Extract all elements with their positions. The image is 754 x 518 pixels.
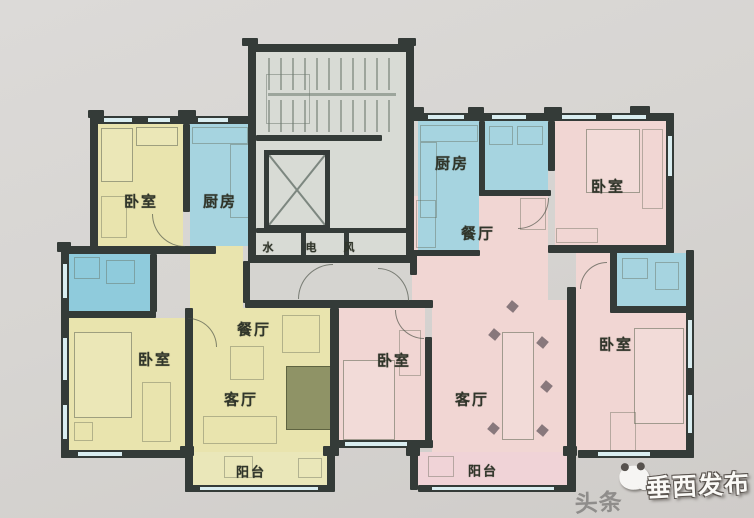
furniture-dining-table [282, 315, 320, 353]
furniture-wardrobe [610, 412, 636, 452]
shaft-label-water: 水 [263, 239, 274, 255]
room-label-right-bedroom-right: 卧室 [599, 334, 633, 355]
furniture-bath-fixture [106, 260, 135, 284]
room-label-right-bedroom-mid: 卧室 [377, 350, 411, 371]
wall-segment [90, 116, 98, 254]
wall-stub [630, 106, 650, 114]
wall-segment [610, 306, 693, 313]
watermark: 头条 垂西发布 [573, 457, 754, 518]
wall-segment [567, 287, 576, 492]
wall-segment [412, 250, 480, 256]
staircase-landing [266, 74, 310, 124]
wall-segment [330, 308, 339, 456]
window-marker [148, 118, 170, 122]
wall-segment [410, 452, 418, 490]
wall-segment [61, 246, 216, 254]
wall-stub [178, 110, 196, 118]
wall-segment [245, 300, 433, 308]
window-marker [428, 115, 464, 119]
elevator-x-icon [269, 155, 325, 225]
room-label-left-balcony: 阳台 [236, 462, 266, 481]
window-marker [562, 115, 596, 119]
wall-stub [88, 110, 104, 118]
wall-stub [563, 446, 577, 456]
furniture-bath-fixture [655, 262, 679, 290]
wall-segment [479, 190, 551, 196]
wall-segment [425, 337, 432, 448]
wall-stub [408, 107, 424, 114]
window-marker [104, 118, 132, 122]
wall-stub [57, 242, 71, 252]
furniture-wardrobe [136, 127, 178, 146]
furniture-bed [101, 128, 133, 182]
window-marker [63, 338, 67, 380]
furniture-sofa [203, 416, 277, 444]
furniture-kitchen-counter [420, 125, 478, 142]
room-label-right-bedroom-top: 卧室 [591, 176, 625, 197]
room-label-left-living: 客厅 [224, 389, 258, 410]
furniture-bed [74, 332, 132, 418]
window-marker [598, 452, 650, 456]
window-marker [198, 118, 228, 122]
wall-stub [398, 38, 416, 46]
furniture-bath-fixture [622, 258, 648, 279]
wall-segment [183, 124, 190, 212]
furniture-bed [343, 360, 395, 440]
window-marker [432, 487, 554, 490]
wall-segment [610, 252, 617, 310]
furniture-bath-fixture [74, 257, 100, 279]
wall-segment [248, 44, 256, 263]
room-left-corridor [190, 246, 243, 308]
watermark-platform-text: 头条 [574, 482, 624, 518]
furniture-wardrobe [142, 382, 171, 442]
furniture-bed [634, 328, 684, 424]
room-label-right-living: 客厅 [455, 389, 489, 410]
wall-segment [410, 255, 417, 275]
furniture-kitchen-counter [192, 127, 248, 144]
furniture-coffee-table [230, 346, 264, 380]
furniture-bath-fixture [489, 126, 513, 145]
window-marker [668, 136, 672, 176]
furniture-bath-fixture [517, 126, 543, 145]
elevator-shaft [264, 150, 330, 230]
wall-stub [323, 446, 337, 456]
floor-plan-image: 卧室 厨房 卧室 餐厅 客厅 阳台 厨房 卧室 餐厅 卧室 客厅 卧室 阳台 水… [0, 0, 754, 518]
shaft-label-vent: 风 [344, 239, 355, 255]
furniture-wardrobe [642, 129, 663, 209]
window-marker [612, 115, 646, 119]
furniture-dining-table [502, 332, 534, 440]
wall-stub [242, 38, 258, 46]
window-marker [63, 405, 67, 439]
room-label-right-balcony: 阳台 [468, 461, 498, 480]
watermark-account-text: 垂西发布 [645, 464, 751, 505]
window-marker [78, 452, 122, 456]
furniture-dresser [556, 228, 598, 243]
window-marker [200, 487, 318, 490]
room-label-left-kitchen: 厨房 [203, 191, 237, 212]
wall-segment [666, 113, 674, 253]
wall-segment [243, 261, 250, 303]
wall-stub [468, 107, 484, 114]
wall-segment [479, 121, 485, 196]
wall-segment [548, 121, 555, 171]
shaft-label-electric: 电 [306, 239, 317, 255]
room-label-left-bedroom-main: 卧室 [138, 349, 172, 370]
furniture-cabinet [416, 200, 436, 248]
furniture-nightstand [74, 422, 93, 441]
wall-segment [248, 44, 414, 52]
wall-segment [256, 228, 408, 233]
wall-segment [256, 135, 382, 141]
room-label-left-dining: 餐厅 [237, 319, 271, 340]
furniture-balcony-item [298, 458, 322, 478]
window-marker [492, 115, 526, 119]
window-marker [345, 442, 407, 446]
wall-stub [544, 107, 562, 114]
wall-segment [248, 255, 414, 263]
room-label-right-dining: 餐厅 [461, 223, 495, 244]
wall-segment [61, 311, 156, 318]
room-label-right-kitchen: 厨房 [435, 153, 469, 174]
room-label-left-bedroom-top: 卧室 [124, 191, 158, 212]
furniture-balcony-item [428, 456, 454, 477]
wall-stub [406, 446, 420, 456]
window-marker [688, 320, 692, 368]
wall-stub [180, 446, 194, 456]
window-marker [63, 264, 67, 298]
wall-segment [150, 254, 157, 312]
furniture-tv-cabinet [286, 366, 332, 430]
window-marker [688, 395, 692, 433]
